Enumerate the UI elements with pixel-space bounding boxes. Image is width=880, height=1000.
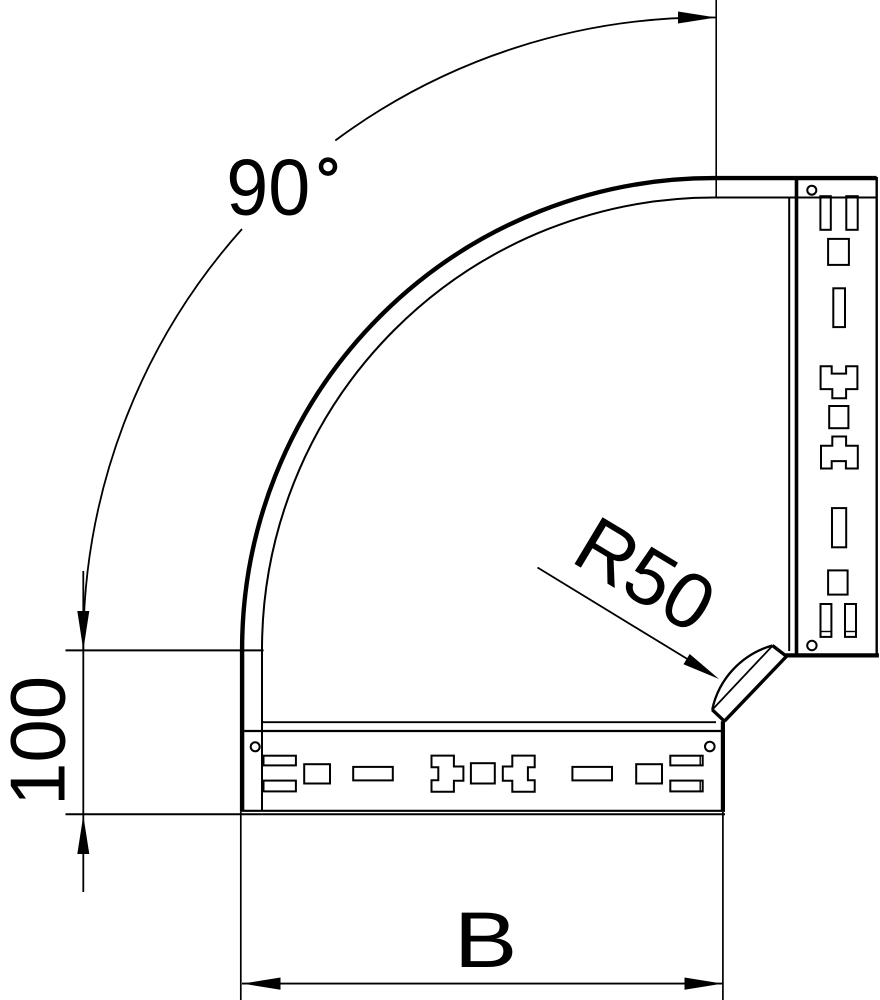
svg-text:B: B [454, 895, 518, 984]
svg-text:90: 90 [226, 142, 310, 231]
svg-text:100: 100 [0, 676, 82, 806]
